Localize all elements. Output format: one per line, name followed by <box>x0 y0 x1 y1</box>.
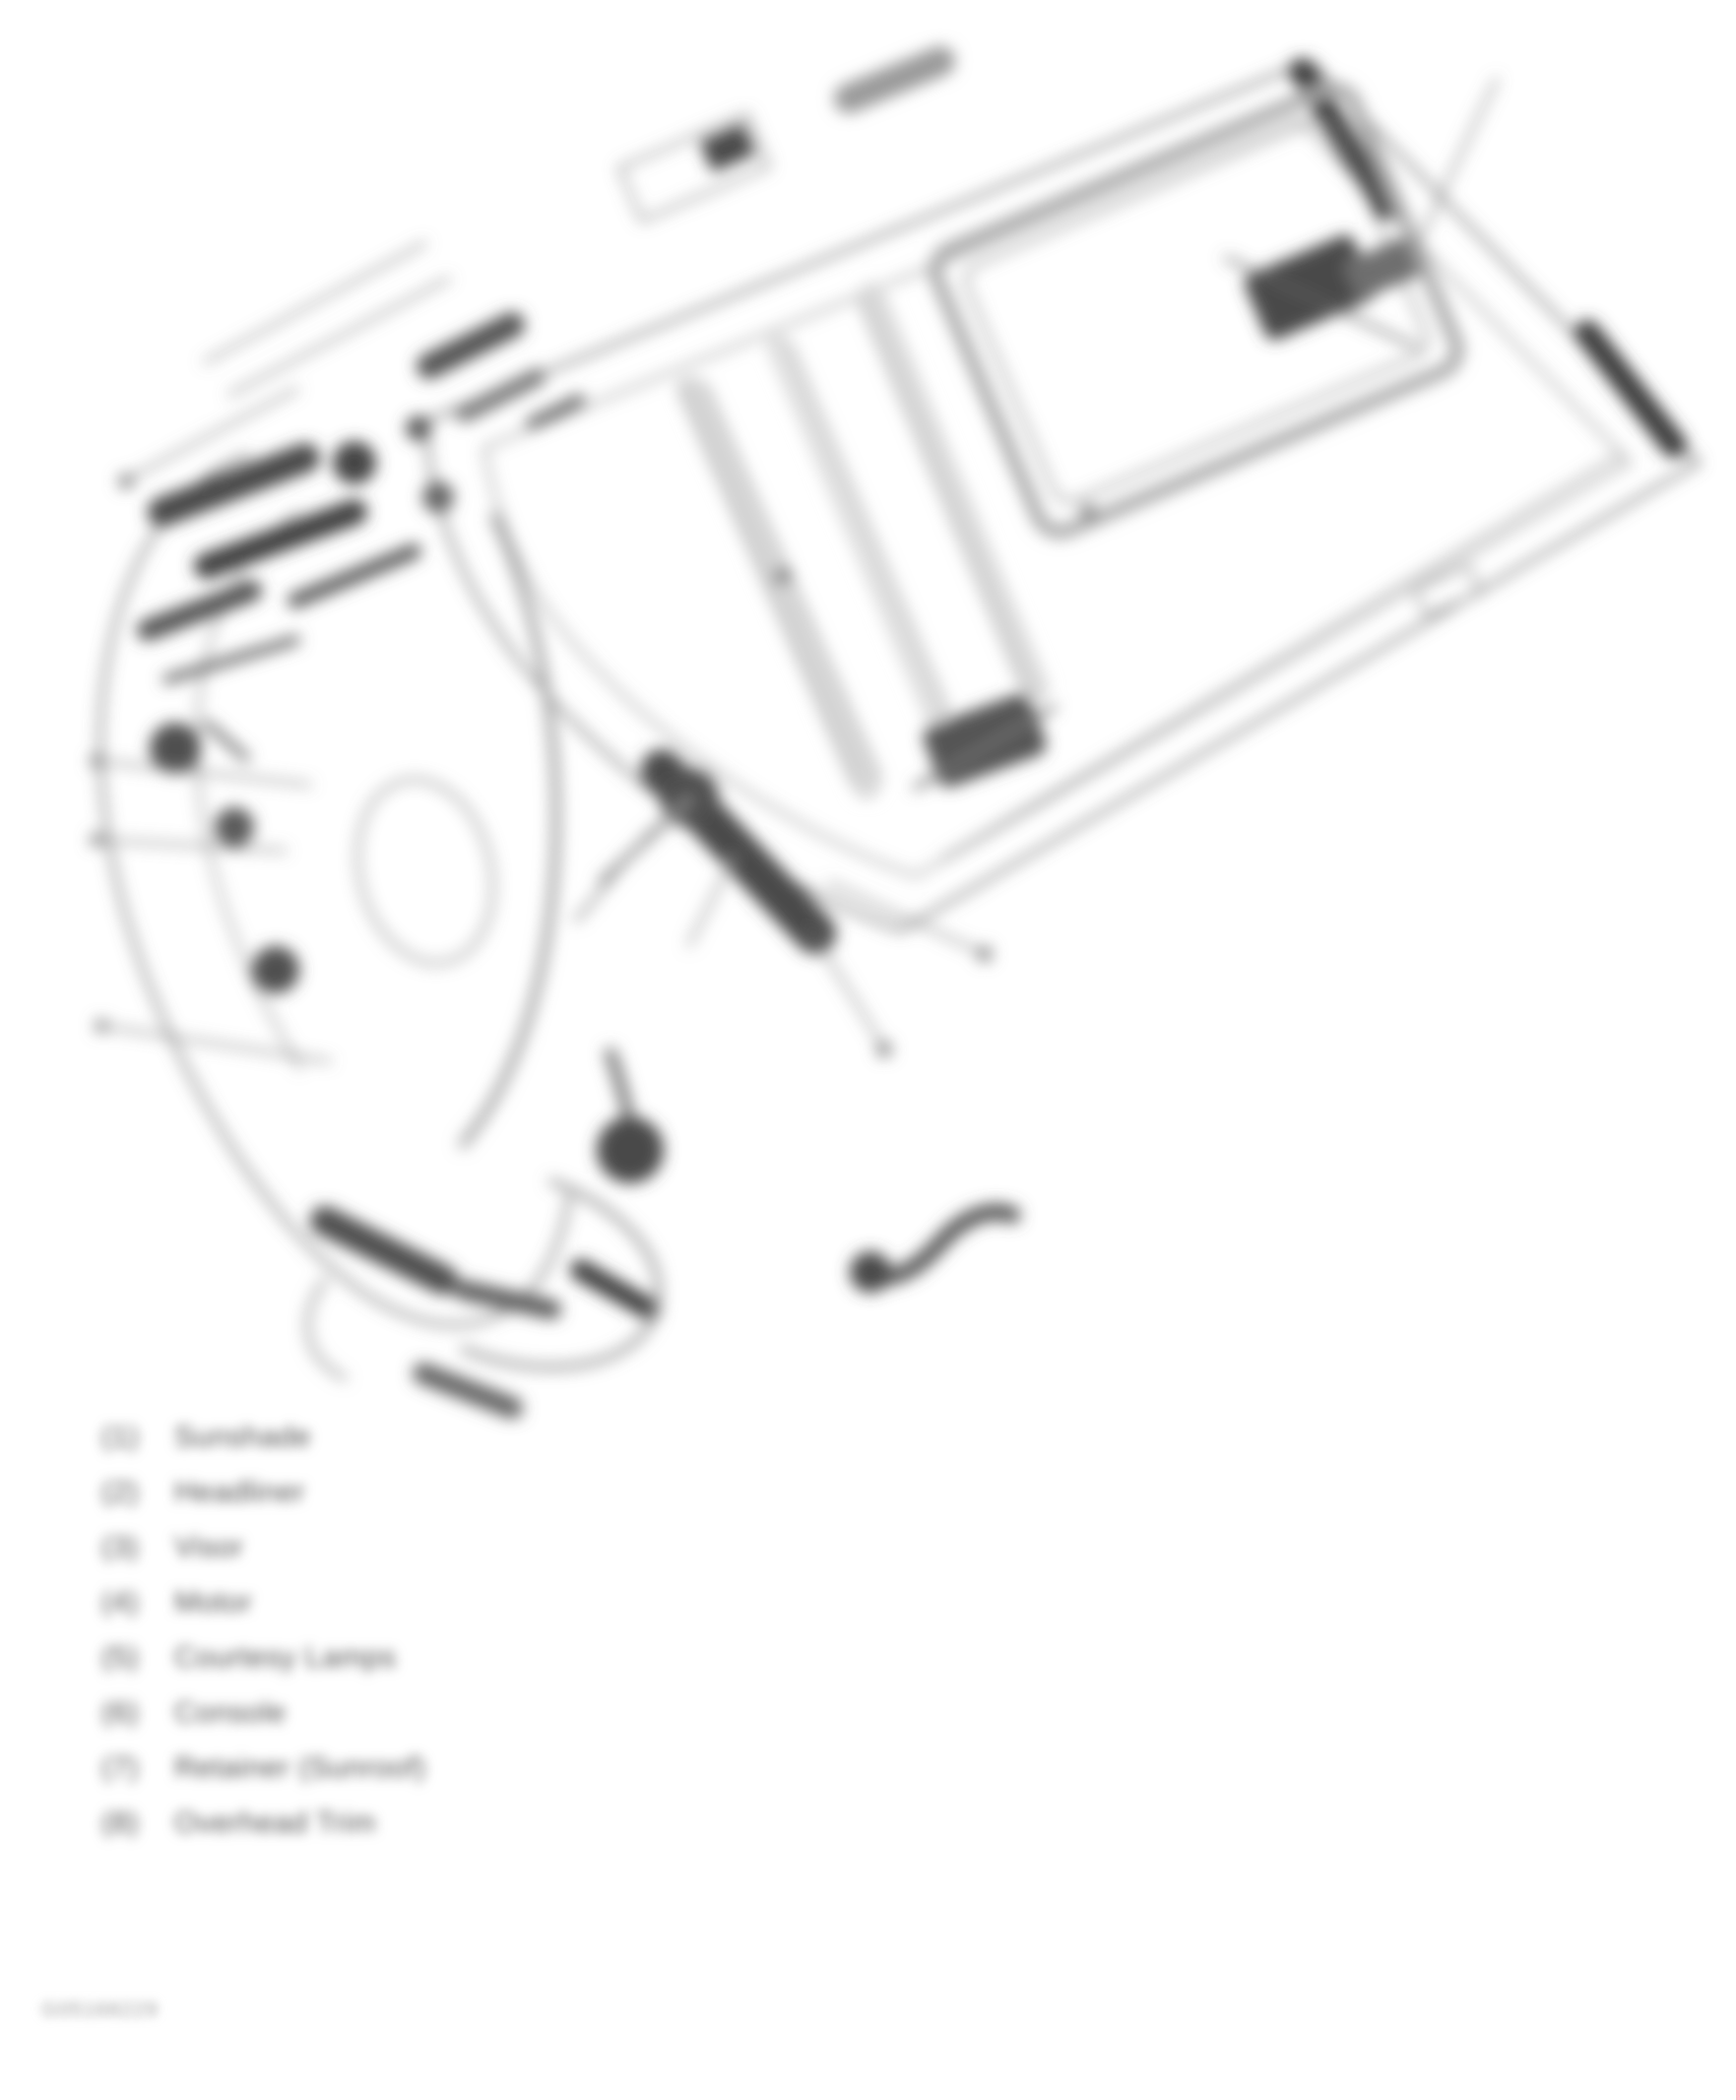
legend-label: Visor <box>174 1531 243 1564</box>
legend-label: Courtesy Lamps <box>174 1641 396 1675</box>
legend-number: (4) <box>101 1586 159 1620</box>
pillar-assembly <box>100 441 664 1408</box>
legend-label: Sunshade <box>174 1421 311 1454</box>
panel-left-detail <box>406 325 579 441</box>
legend-label: Headliner <box>174 1476 305 1509</box>
legend-item-5: (5) Courtesy Lamps <box>101 1630 426 1686</box>
legend-item-6: (6) Console <box>101 1686 426 1741</box>
legend-item-3: (3) Visor <box>101 1520 426 1575</box>
legend-number: (2) <box>101 1476 159 1509</box>
console-cluster <box>1226 231 1422 347</box>
hub-cluster <box>576 768 815 945</box>
legend-number: (5) <box>101 1641 159 1675</box>
legend-item-8: (8) Overhead Trim <box>101 1796 426 1851</box>
legend-item-1: (1) Sunshade <box>101 1410 426 1465</box>
legend-number: (6) <box>101 1696 159 1730</box>
legend-number: (7) <box>101 1751 159 1785</box>
legend-item-7: (7) Retainer (Sunroof) <box>101 1741 426 1796</box>
figure-page: (1) Sunshade (2) Headliner (3) Visor (4)… <box>0 0 1736 2100</box>
connector-part <box>850 1212 1012 1293</box>
legend-item-4: (4) Motor <box>101 1575 426 1630</box>
legend-item-2: (2) Headliner <box>101 1465 426 1520</box>
legend-list: (1) Sunshade (2) Headliner (3) Visor (4)… <box>101 1410 426 1851</box>
legend-number: (3) <box>101 1531 159 1564</box>
corner-accent <box>1587 333 1674 445</box>
legend-label: Retainer (Sunroof) <box>174 1751 426 1785</box>
legend-number: (8) <box>101 1807 159 1840</box>
legend-number: (1) <box>101 1421 159 1454</box>
figure-code: G05168229 <box>41 1999 159 2022</box>
legend-label: Overhead Trim <box>174 1807 376 1840</box>
legend-label: Console <box>174 1696 287 1730</box>
sunroof-opening <box>929 81 1465 539</box>
mirror-oval <box>340 766 511 977</box>
panel-cutout <box>619 114 769 221</box>
legend-label: Motor <box>174 1586 252 1620</box>
headliner-panel <box>406 61 1699 945</box>
